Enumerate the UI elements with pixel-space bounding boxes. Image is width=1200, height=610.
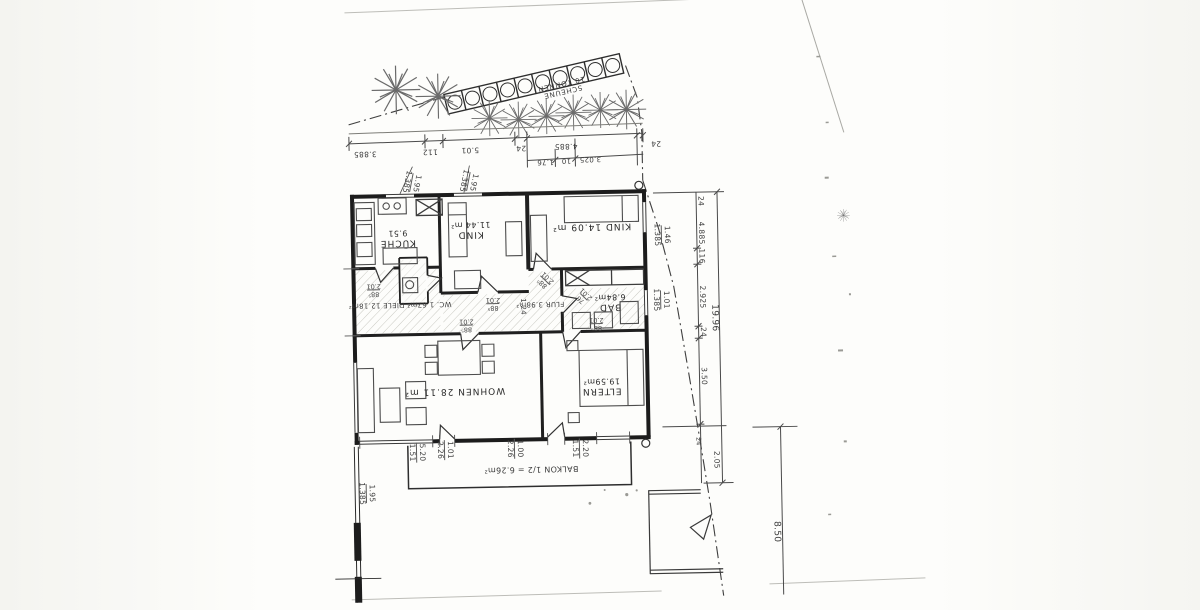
annex-outline	[649, 489, 724, 574]
dim-right-lower-24: 24	[694, 437, 702, 445]
dim-right-5: 3.50	[699, 367, 708, 385]
plan-sheet: SCHEUNE 10 TONNEN KÜCHE 9.51 KIND 11.44 …	[0, 0, 1200, 610]
dim-top-0: 3.885	[354, 149, 377, 158]
dim-topsub-1: 10	[562, 157, 572, 165]
dim-site-depth: 8.50	[771, 521, 782, 542]
room-label-bad: BAD 6.84m²	[594, 292, 626, 312]
south-dim-1: 5.20 1.51	[408, 442, 427, 462]
room-label-eltern: ELTERN 19.59m²	[582, 376, 622, 396]
stray-tree-speck	[837, 209, 850, 222]
south-dim-2: 1.01 2.26	[436, 440, 455, 460]
room-label-kind1: KIND 11.44 m²	[451, 219, 491, 239]
dim-top-4: 4.885	[554, 141, 577, 150]
dim-right-2: 116	[697, 248, 706, 263]
scanned-floor-plan-page: { "document": { "kind": "Scanned archite…	[0, 0, 1200, 600]
dim-right-0: 24	[696, 196, 705, 206]
south-dim-3: 1.00 2.26	[506, 439, 525, 459]
dim-top-2: 5.01	[461, 145, 479, 154]
dim-right-1: 4.885	[696, 222, 705, 245]
dim-topsub-2: 3.025	[579, 155, 601, 163]
window-label-east-2: 1.01 1.385	[652, 288, 671, 311]
dim-top-1: 112	[422, 147, 437, 156]
room-label-kueche: KÜCHE 9.51	[380, 228, 416, 248]
dim-right-3: 2.925	[697, 286, 706, 309]
dim-topsub-0: 1.76	[537, 158, 554, 166]
window-label-west: 1.95 1.385	[357, 482, 376, 505]
top-dimension-chain	[346, 123, 647, 195]
site-depth-dimension	[752, 423, 800, 595]
dim-right-4: 24	[698, 327, 707, 337]
door-label-kueche: 88⁵2.01	[366, 281, 381, 297]
dim-right-total: 19.96	[709, 304, 720, 331]
shed-bay-row	[444, 54, 624, 114]
dim-top-3: 24	[516, 143, 526, 152]
door-label-kind1: 88⁵2.01	[486, 295, 501, 311]
door-label-eltern: 88⁵2.01	[589, 315, 604, 331]
room-label-balkon: BALKON 1/2 = 6.26m²	[484, 464, 578, 475]
room-label-kind2: KIND 14.09 m²	[552, 220, 631, 232]
dim-hall-width: 1.24	[519, 298, 527, 315]
window-label-east-1: 1.46 1.385	[652, 223, 671, 246]
dim-right-lower-205: 2.05	[712, 451, 721, 469]
dim-top-5: 24	[651, 139, 661, 148]
door-label-wohnen: 88⁵2.01	[459, 317, 474, 333]
window-label-north-1: 1.95 1.385	[401, 170, 423, 196]
window-label-north-2: 1.95 1.385	[458, 169, 480, 195]
room-label-wohnen: WOHNEN 28.11 m²	[404, 385, 505, 397]
south-dim-4: 2.20 1.51	[571, 438, 590, 458]
